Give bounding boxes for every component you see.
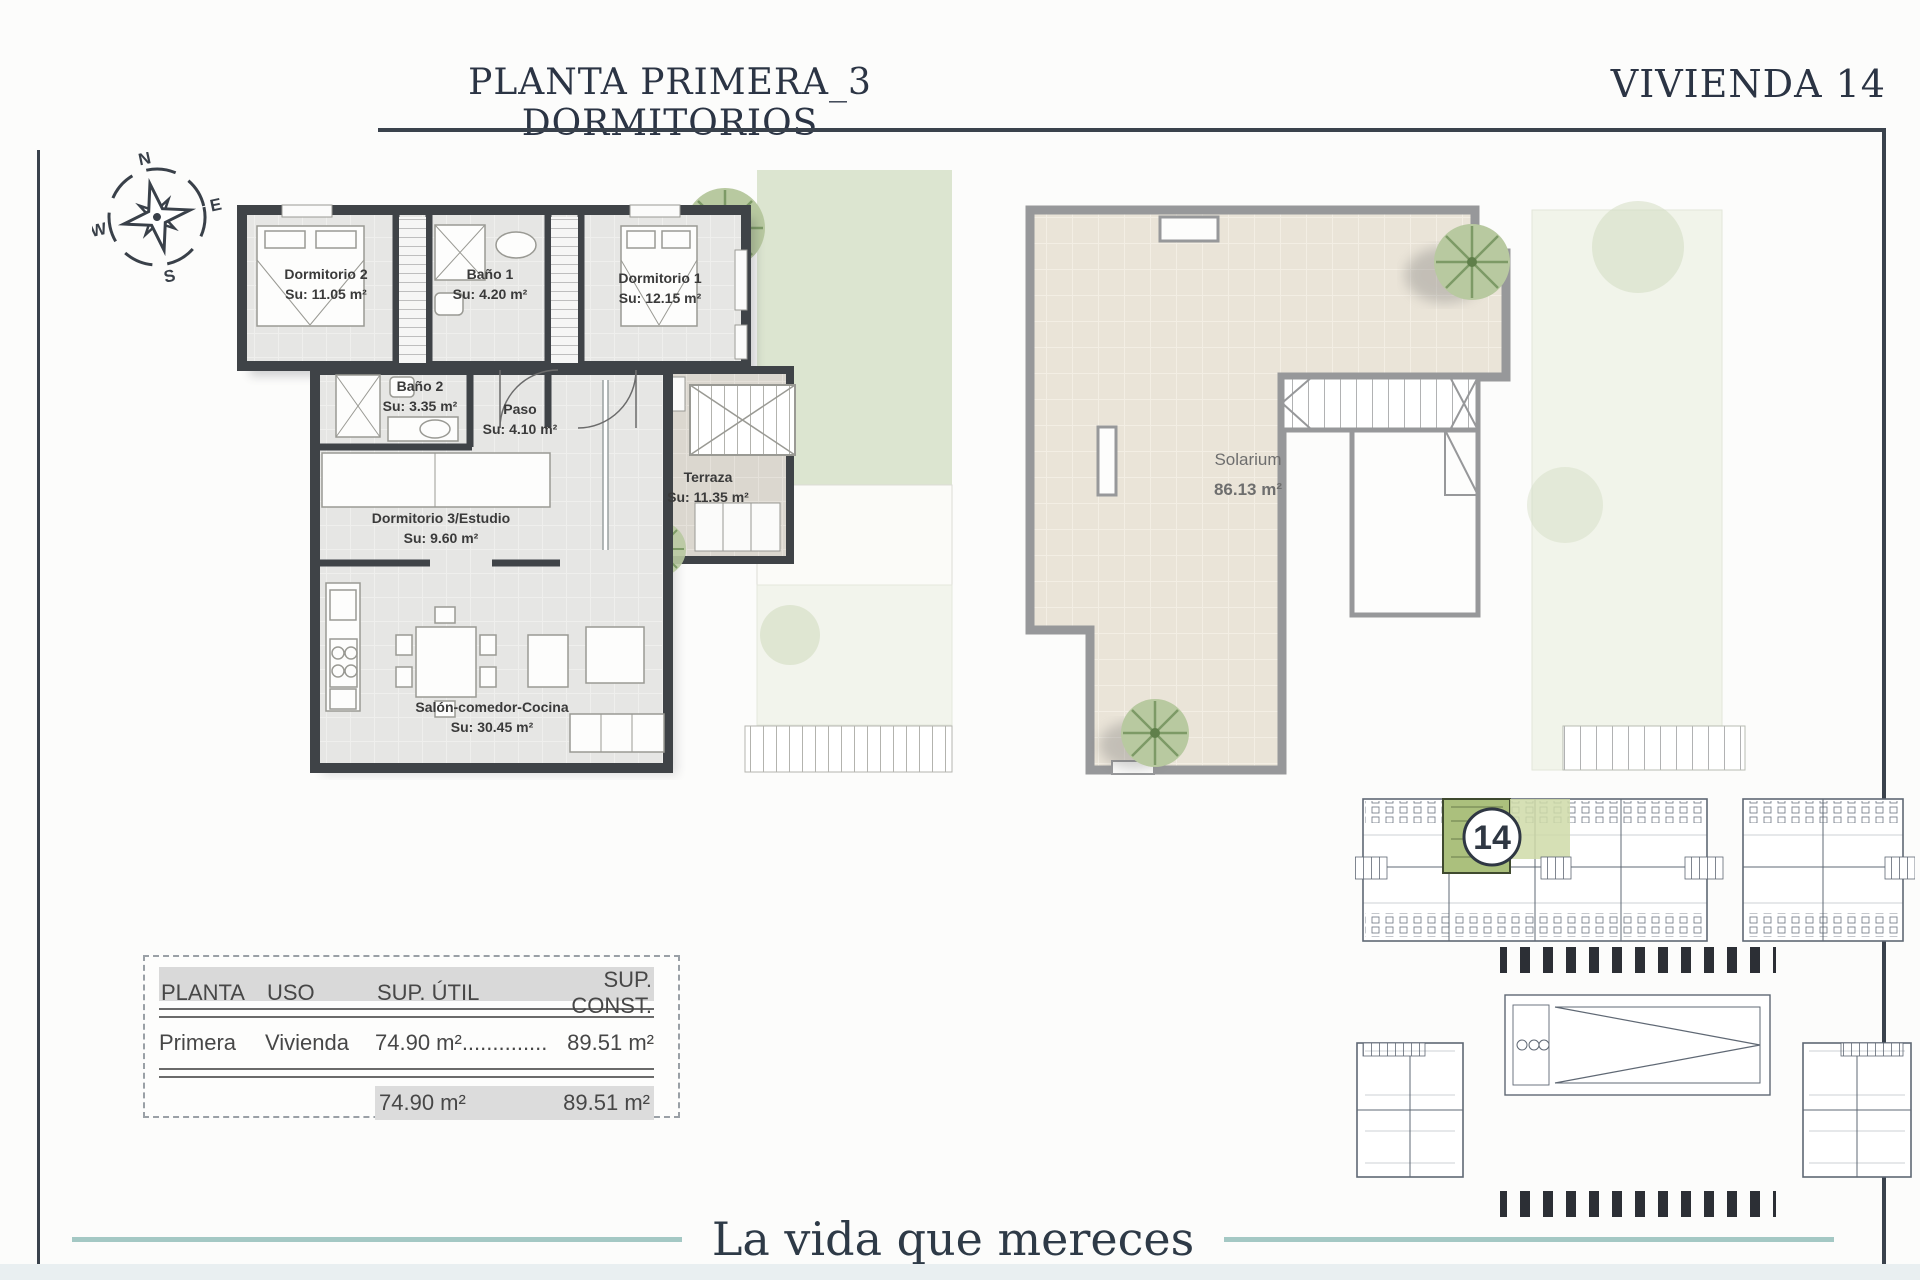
- compass-e: E: [208, 195, 222, 216]
- tagline-rule-left: [72, 1237, 682, 1242]
- room-area-bano1: Su: 4.20 m²: [453, 286, 528, 302]
- table-divider: [159, 1068, 654, 1078]
- unit-title: VIVIENDA 14: [1611, 62, 1886, 106]
- unit-number-badge: 14: [1464, 809, 1520, 865]
- apartment-block: [1743, 799, 1903, 941]
- faded-tree-icon: [1527, 467, 1603, 543]
- compass-s: S: [162, 266, 177, 282]
- left-border-rule: [37, 150, 40, 1280]
- footer: La vida que mereces: [72, 1206, 1834, 1272]
- apartment-block: [1803, 1043, 1911, 1177]
- pool-area: [1500, 947, 1776, 1217]
- room-label-bano1: Baño 1: [467, 266, 514, 282]
- faded-tree-icon: [1592, 201, 1684, 293]
- room-label-salon: Salón-comedor-Cocina: [415, 699, 568, 715]
- roof-vent: [1160, 217, 1218, 241]
- room-area-paso: Su: 4.10 m²: [483, 421, 558, 437]
- col-header-uso: USO: [265, 980, 375, 1006]
- cell-sup-util: 74.90 m².............. 89.51 m²: [375, 1030, 654, 1056]
- room-label-dormitorio3: Dormitorio 3/Estudio: [372, 510, 510, 526]
- exterior-stairs-bottom: [1563, 726, 1745, 770]
- room-area-terraza: Su: 11.35 m²: [667, 489, 749, 505]
- compass-icon: N E S W: [92, 152, 222, 282]
- solarium-staircase: [1282, 377, 1478, 430]
- totals-band: 74.90 m² 89.51 m²: [375, 1086, 654, 1120]
- room-area-salon: Su: 30.45 m²: [451, 719, 534, 735]
- first-floor-plan: Dormitorio 2 Su: 11.05 m² Baño 1 Su: 4.2…: [230, 165, 970, 780]
- tagline: La vida que mereces: [712, 1212, 1194, 1266]
- wardrobe: [399, 217, 426, 363]
- solarium-label: Solarium: [1214, 450, 1281, 469]
- sup-const-value: 89.51 m²: [567, 1030, 654, 1056]
- sup-util-value: 74.90 m²..............: [375, 1030, 547, 1055]
- col-header-sup-const: SUP. CONST.: [527, 967, 654, 1019]
- tagline-rule-right: [1224, 1237, 1834, 1242]
- room-area-bano2: Su: 3.35 m²: [383, 398, 458, 414]
- areas-table-header: PLANTA USO SUP. ÚTIL SUP. CONST.: [159, 967, 654, 1001]
- sun-loungers-row: [1500, 947, 1776, 973]
- room-label-dormitorio2: Dormitorio 2: [284, 266, 367, 282]
- wall-vent: [1098, 427, 1116, 495]
- cell-uso: Vivienda: [265, 1030, 375, 1056]
- bottom-band: [0, 1264, 1920, 1280]
- top-rule: [378, 128, 1886, 132]
- solarium-area: 86.13 m²: [1214, 480, 1282, 499]
- room-label-terraza: Terraza: [684, 469, 733, 485]
- room-area-dormitorio3: Su: 9.60 m²: [404, 530, 479, 546]
- room-label-dormitorio1: Dormitorio 1: [618, 270, 701, 286]
- site-plan: 14: [1355, 795, 1915, 1220]
- unit-number: 14: [1473, 819, 1511, 857]
- wardrobe: [551, 217, 578, 363]
- table-row: Primera Vivienda 74.90 m².............. …: [159, 1025, 654, 1061]
- total-sup-util: 74.90 m²: [379, 1090, 466, 1116]
- room-label-paso: Paso: [503, 401, 536, 417]
- brochure-page: PLANTA PRIMERA_3 DORMITORIOS VIVIENDA 14…: [0, 0, 1920, 1280]
- room-label-bano2: Baño 2: [397, 378, 444, 394]
- terraza-sofa: [695, 503, 780, 551]
- solarium-plan: Solarium 86.13 m²: [1020, 165, 1750, 780]
- pool: [1505, 995, 1770, 1095]
- col-header-planta: PLANTA: [159, 980, 265, 1006]
- table-totals-row: 74.90 m² 89.51 m²: [159, 1085, 654, 1121]
- apartment-block: [1357, 1043, 1463, 1177]
- compass-w: W: [92, 219, 109, 241]
- faded-tree-icon: [760, 605, 820, 665]
- cell-planta: Primera: [159, 1030, 265, 1056]
- compass-n: N: [137, 152, 153, 169]
- room-area-dormitorio1: Su: 12.15 m²: [619, 290, 702, 306]
- col-header-sup-util: SUP. ÚTIL: [375, 980, 527, 1006]
- total-sup-const: 89.51 m²: [563, 1090, 650, 1116]
- areas-table: PLANTA USO SUP. ÚTIL SUP. CONST. Primera…: [143, 955, 680, 1118]
- studio-counter: [322, 453, 550, 507]
- kitchen-counter: [326, 583, 360, 711]
- exterior-stairs-bottom: [745, 726, 952, 772]
- room-area-dormitorio2: Su: 11.05 m²: [285, 286, 367, 302]
